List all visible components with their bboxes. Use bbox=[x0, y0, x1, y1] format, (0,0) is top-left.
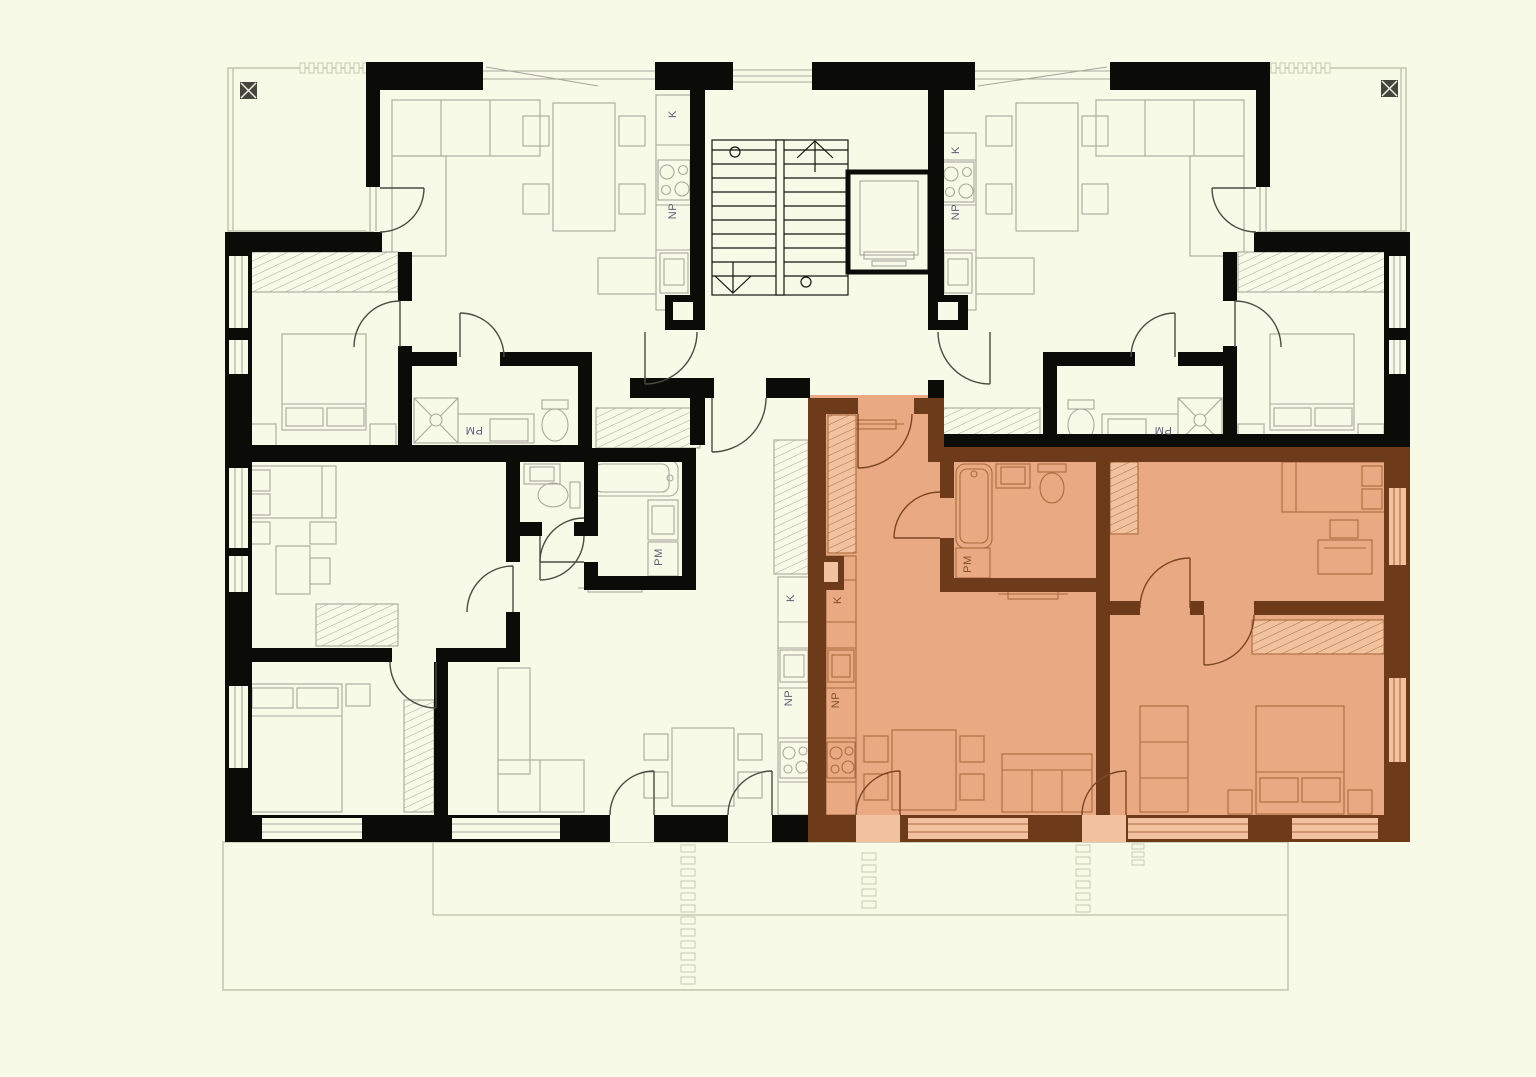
window bbox=[1389, 488, 1406, 565]
sofa-icon bbox=[392, 100, 540, 256]
floor-plan-page: KNPPMKNPPMKNPPMKNPPM bbox=[0, 0, 1536, 1077]
fixture-label-k: K bbox=[667, 110, 679, 118]
door-arc bbox=[712, 398, 766, 452]
staircase-icon bbox=[712, 140, 848, 295]
door-arc bbox=[460, 313, 504, 357]
kitchen-counter-icon bbox=[940, 133, 1034, 310]
window bbox=[1389, 678, 1406, 762]
fixture-label-pm: PM bbox=[962, 555, 974, 573]
fixture-label-pm: PM bbox=[465, 424, 483, 436]
handrail-post-icon bbox=[801, 277, 811, 287]
sink-icon bbox=[660, 253, 688, 293]
apartment-bottom-left-furniture bbox=[244, 440, 810, 815]
toilet-icon bbox=[542, 400, 568, 441]
door-arc bbox=[380, 188, 424, 232]
window bbox=[366, 187, 380, 231]
balcony-door-opening bbox=[610, 815, 654, 842]
handrail-post-icon bbox=[730, 147, 740, 157]
door-arc bbox=[610, 771, 654, 815]
wardrobe-icon bbox=[1238, 252, 1390, 292]
wardrobe-icon bbox=[1252, 620, 1384, 654]
bed-icon bbox=[250, 334, 396, 448]
nightstand-icon bbox=[250, 424, 276, 448]
door-arc bbox=[645, 332, 697, 384]
window bbox=[1256, 187, 1270, 231]
window bbox=[1292, 818, 1378, 839]
window bbox=[483, 64, 655, 88]
fixture-label-np: NP bbox=[667, 203, 679, 219]
bed-icon bbox=[248, 684, 370, 812]
window bbox=[733, 64, 812, 88]
balcony-door-opening bbox=[1082, 815, 1126, 842]
door-arc bbox=[1131, 313, 1175, 357]
wardrobe-icon bbox=[246, 252, 398, 292]
fixture-label-np: NP bbox=[950, 204, 962, 220]
balcony-door-opening bbox=[856, 815, 900, 842]
window bbox=[975, 64, 1110, 88]
stove-icon bbox=[780, 742, 810, 778]
apartment-top-right-furniture bbox=[934, 100, 1390, 448]
nightstand-icon bbox=[370, 424, 396, 448]
dining-table-icon bbox=[644, 728, 762, 806]
stove-icon bbox=[942, 162, 974, 202]
window bbox=[229, 556, 248, 592]
nightstand-icon bbox=[346, 684, 370, 706]
door-arc bbox=[938, 332, 990, 384]
window bbox=[229, 340, 248, 374]
sofa-icon bbox=[1096, 100, 1244, 256]
window bbox=[262, 818, 362, 839]
desk-icon bbox=[276, 546, 330, 594]
toilet-icon bbox=[538, 482, 580, 508]
sofa-icon bbox=[498, 668, 584, 812]
terrace-bottom bbox=[223, 842, 1288, 990]
window bbox=[1389, 256, 1406, 328]
fixture-label-pm: PM bbox=[1154, 424, 1172, 436]
bed-icon bbox=[244, 466, 336, 544]
wardrobe-icon bbox=[596, 408, 700, 448]
window bbox=[1128, 818, 1248, 839]
dining-table-icon bbox=[986, 103, 1108, 231]
door-arc bbox=[467, 566, 513, 612]
window bbox=[452, 818, 560, 839]
wardrobe-icon bbox=[828, 415, 856, 553]
window bbox=[229, 256, 248, 328]
door-arc bbox=[540, 536, 584, 580]
fixture-label-pm: PM bbox=[653, 548, 665, 566]
elevator-icon bbox=[848, 172, 930, 272]
door-arc bbox=[728, 771, 772, 815]
balcony-door-opening bbox=[728, 815, 772, 842]
floor-plan-drawing: KNPPMKNPPMKNPPMKNPPM bbox=[0, 0, 1536, 1077]
fixture-label-np: NP bbox=[783, 690, 795, 706]
fixture-label-np: NP bbox=[830, 692, 842, 708]
sink-icon bbox=[944, 253, 972, 293]
fixture-label-k: K bbox=[785, 594, 797, 602]
wardrobe-icon bbox=[404, 700, 434, 812]
door-arc bbox=[1212, 188, 1256, 232]
drain-icon bbox=[1381, 80, 1398, 97]
window bbox=[229, 468, 248, 548]
drain-icon bbox=[240, 82, 257, 99]
door-arc bbox=[354, 301, 400, 347]
fixture-label-k: K bbox=[832, 596, 844, 604]
stove-icon bbox=[658, 160, 690, 200]
fixture-label-k: K bbox=[950, 146, 962, 154]
wardrobe-icon bbox=[774, 440, 808, 574]
dining-table-icon bbox=[523, 103, 645, 231]
bathtub-icon bbox=[590, 460, 678, 496]
wc-sink-icon bbox=[524, 464, 560, 484]
sink-icon bbox=[780, 650, 808, 682]
terrace-divider-ticks-icon bbox=[681, 844, 1144, 984]
nightstand-icon bbox=[310, 522, 336, 544]
bed-icon bbox=[1238, 334, 1384, 448]
bathroom-sink-icon bbox=[648, 500, 678, 540]
shower-icon bbox=[414, 398, 458, 443]
window bbox=[229, 686, 248, 768]
window bbox=[908, 818, 1028, 839]
wardrobe-icon bbox=[316, 604, 398, 646]
door-arc bbox=[1235, 301, 1281, 347]
wardrobe-icon bbox=[1110, 462, 1138, 534]
window bbox=[1389, 340, 1406, 374]
